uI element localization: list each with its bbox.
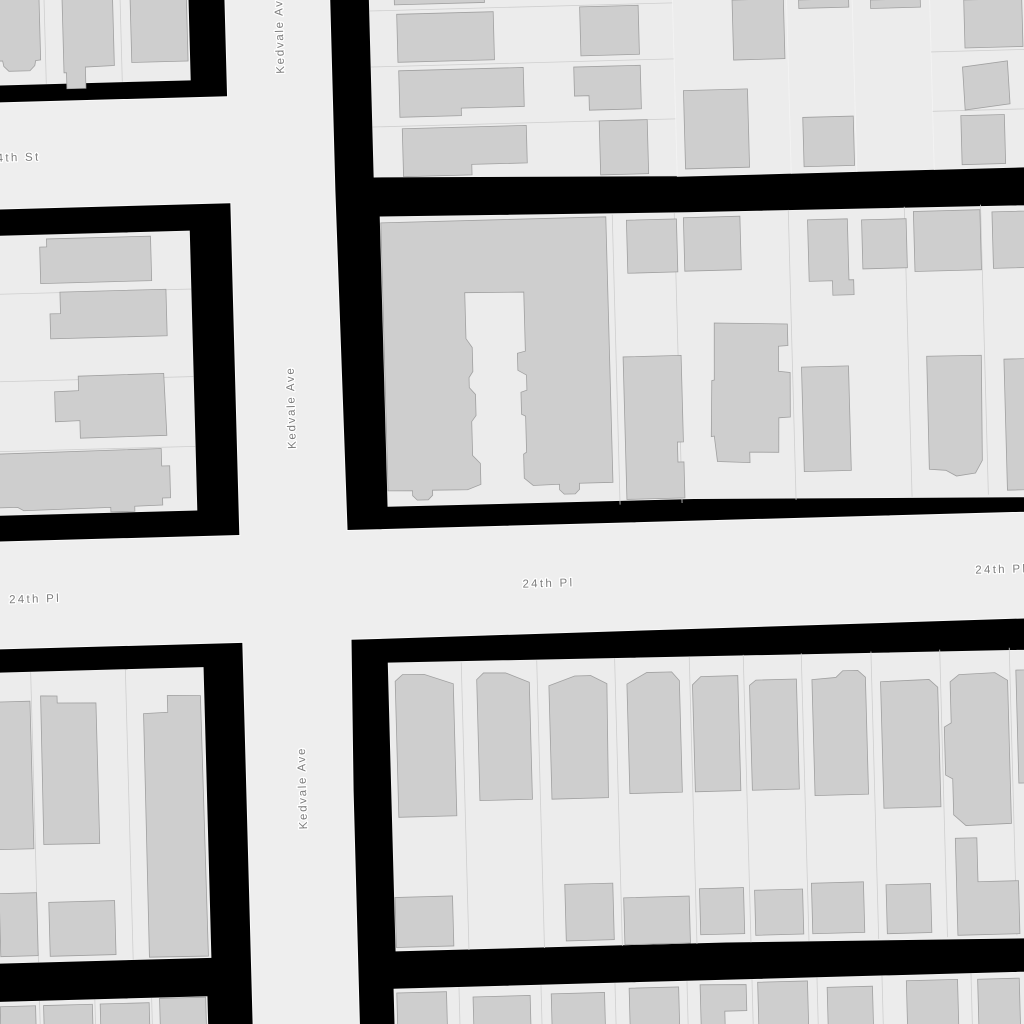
svg-text:Kedvale Ave: Kedvale Ave [273, 0, 287, 74]
svg-text:Kedvale Ave: Kedvale Ave [285, 366, 299, 449]
svg-text:24th Pl: 24th Pl [522, 577, 574, 590]
svg-text:24th St: 24th St [0, 152, 41, 165]
svg-text:24th Pl: 24th Pl [9, 593, 61, 606]
svg-text:Kedvale Ave: Kedvale Ave [296, 747, 310, 830]
svg-text:24th Pl: 24th Pl [975, 563, 1024, 576]
